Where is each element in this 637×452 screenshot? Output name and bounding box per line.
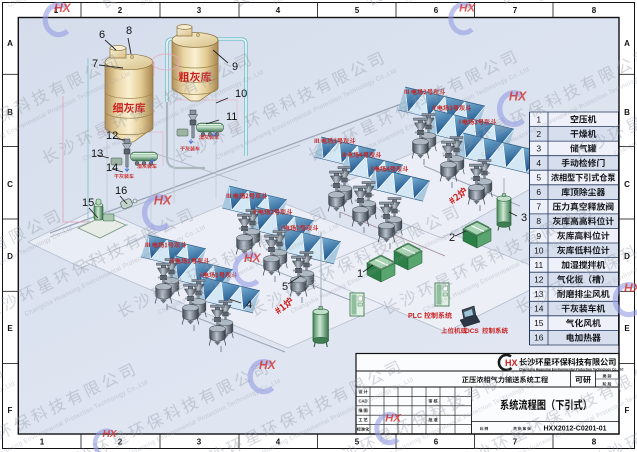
svg-text:HX: HX bbox=[459, 2, 476, 14]
svg-text:III: III bbox=[145, 242, 150, 249]
svg-text:8: 8 bbox=[592, 438, 597, 447]
svg-text:HX: HX bbox=[505, 358, 518, 368]
svg-text:10: 10 bbox=[235, 88, 247, 100]
svg-text:C: C bbox=[7, 180, 13, 189]
svg-text:6: 6 bbox=[99, 29, 105, 41]
svg-text:HX: HX bbox=[509, 90, 528, 104]
svg-text:14: 14 bbox=[106, 162, 118, 174]
svg-text:III: III bbox=[314, 138, 319, 145]
svg-text:HX: HX bbox=[54, 1, 72, 15]
svg-text:HX: HX bbox=[385, 412, 402, 424]
svg-text:6: 6 bbox=[536, 187, 541, 197]
svg-text:14: 14 bbox=[534, 304, 544, 314]
svg-text:9: 9 bbox=[232, 61, 238, 73]
svg-text:DCS: DCS bbox=[465, 328, 479, 335]
svg-text:B: B bbox=[624, 108, 630, 117]
svg-text:A: A bbox=[624, 39, 630, 48]
svg-text:HX: HX bbox=[259, 358, 277, 372]
svg-text:4: 4 bbox=[536, 158, 541, 168]
svg-text:II: II bbox=[170, 258, 174, 265]
svg-text:6: 6 bbox=[434, 438, 439, 447]
svg-text:8: 8 bbox=[592, 6, 597, 15]
svg-text:16: 16 bbox=[115, 185, 127, 197]
svg-text:11: 11 bbox=[534, 260, 543, 270]
svg-text:3: 3 bbox=[521, 212, 527, 224]
svg-text:I: I bbox=[459, 119, 461, 126]
svg-text:HX: HX bbox=[244, 251, 262, 265]
svg-text:E: E bbox=[624, 324, 630, 333]
svg-text:1: 1 bbox=[40, 438, 45, 447]
svg-text:5: 5 bbox=[355, 6, 360, 15]
svg-text:5: 5 bbox=[536, 173, 541, 183]
svg-text:7: 7 bbox=[513, 6, 518, 15]
svg-text:4: 4 bbox=[246, 299, 252, 311]
svg-text:3: 3 bbox=[197, 6, 202, 15]
svg-text:3: 3 bbox=[197, 438, 202, 447]
svg-text:3: 3 bbox=[536, 143, 541, 153]
svg-text:4: 4 bbox=[276, 6, 281, 15]
svg-text:16: 16 bbox=[534, 333, 544, 343]
svg-text:II: II bbox=[253, 209, 257, 216]
svg-text:E: E bbox=[7, 324, 13, 333]
svg-text:II: II bbox=[342, 152, 346, 159]
svg-text:15: 15 bbox=[82, 197, 94, 209]
svg-text:Changsha Huanxing Environmenta: Changsha Huanxing Environmental Protecti… bbox=[519, 368, 623, 372]
svg-text:2: 2 bbox=[118, 6, 123, 15]
svg-text:HX: HX bbox=[154, 194, 173, 208]
svg-text:7: 7 bbox=[536, 202, 541, 212]
svg-text:F: F bbox=[8, 406, 13, 415]
svg-text:6: 6 bbox=[434, 6, 439, 15]
svg-text:1: 1 bbox=[536, 114, 541, 124]
svg-text:15: 15 bbox=[534, 318, 544, 328]
svg-text:12: 12 bbox=[534, 274, 544, 284]
svg-text:A: A bbox=[7, 39, 13, 48]
svg-text:8: 8 bbox=[536, 216, 541, 226]
svg-text:PLC: PLC bbox=[408, 313, 422, 320]
svg-text:I: I bbox=[371, 166, 373, 173]
svg-text:III: III bbox=[404, 89, 409, 96]
svg-text:III: III bbox=[226, 193, 231, 200]
svg-text:HX: HX bbox=[102, 429, 117, 440]
svg-text:C: C bbox=[624, 180, 630, 189]
svg-text:8: 8 bbox=[126, 25, 132, 37]
svg-text:9: 9 bbox=[536, 231, 541, 241]
svg-text:7: 7 bbox=[92, 58, 98, 70]
svg-text:HX: HX bbox=[624, 281, 637, 295]
svg-text:F: F bbox=[625, 406, 630, 415]
